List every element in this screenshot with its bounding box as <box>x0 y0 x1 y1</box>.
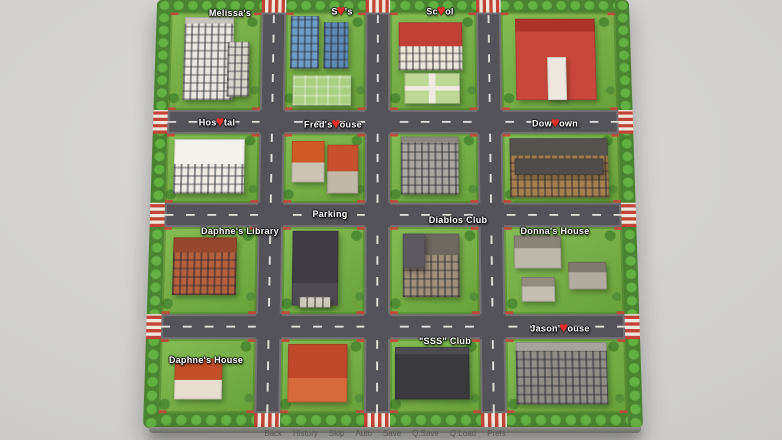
church-building <box>547 57 566 100</box>
parking-building <box>298 297 331 308</box>
sams-building <box>293 75 351 105</box>
freds-house-building <box>327 145 358 193</box>
map-label-freds-house[interactable]: Fred's ♥ouse <box>304 117 362 132</box>
crosswalk <box>481 413 507 428</box>
big-house-block[interactable] <box>280 339 364 413</box>
label-text: 's <box>345 6 353 16</box>
quickmenu-auto[interactable]: Auto <box>355 429 371 439</box>
map-label-daphnes-library[interactable]: Daphne's Library <box>201 226 279 236</box>
label-text: Daphne's Library <box>201 226 279 236</box>
parking-building <box>292 230 339 305</box>
sss-club-block[interactable] <box>390 339 481 413</box>
donnas-house-building <box>568 262 607 290</box>
map-label-melissas[interactable]: Melissa's <box>209 8 251 18</box>
school-block[interactable] <box>390 13 477 110</box>
map-label-daphnes-house[interactable]: Daphne's House <box>169 355 243 365</box>
intersection <box>258 203 284 227</box>
diablos-club-block[interactable] <box>390 227 480 314</box>
label-text: ouse <box>567 323 589 333</box>
crosswalk <box>254 413 280 428</box>
quickmenu-prefs[interactable]: Prefs <box>487 429 506 439</box>
label-text: Donna's House <box>520 226 589 236</box>
melissas-building <box>227 42 250 97</box>
road-horizontal-2 <box>164 203 622 227</box>
diablos-club-building <box>402 234 425 269</box>
hospital-building <box>173 139 245 193</box>
sams-building <box>290 16 319 68</box>
crosswalk <box>153 110 168 134</box>
crosswalk <box>146 314 162 339</box>
label-text: Hos <box>199 117 217 127</box>
quickmenu-save[interactable]: Save <box>383 429 401 439</box>
map-label-sss-club[interactable]: "SSS" Club <box>419 336 471 346</box>
sss-club-building <box>395 347 469 400</box>
sams-building <box>324 22 348 69</box>
donnas-house-building <box>514 236 562 269</box>
quickmenu-q-load[interactable]: Q.Load <box>450 429 476 439</box>
daphnes-library-building <box>172 237 237 294</box>
school-building <box>399 22 463 71</box>
downtown-building <box>515 158 604 175</box>
intersection <box>365 203 390 227</box>
label-text: tal <box>224 117 235 127</box>
intersection <box>480 314 506 339</box>
crosswalk <box>624 314 640 339</box>
map-label-sams[interactable]: S♥'s <box>331 4 352 19</box>
jasons-house-block[interactable] <box>506 339 628 413</box>
label-text: ol <box>445 6 454 16</box>
quick-menu-bar: BackHistorySkipAutoSaveQ.SaveQ.LoadPrefs <box>0 429 776 439</box>
melissas-block[interactable] <box>168 13 262 110</box>
apartment-building <box>401 136 459 194</box>
parking-block[interactable] <box>282 227 365 314</box>
intersection <box>364 314 390 339</box>
church-block[interactable] <box>501 13 618 110</box>
daphnes-house-block[interactable] <box>158 339 255 413</box>
crosswalk <box>262 0 287 13</box>
map-label-parking[interactable]: Parking <box>312 209 347 219</box>
label-text: ouse <box>340 119 362 129</box>
label-text: Jason' <box>530 323 560 333</box>
label-text: Diablos Club <box>429 215 488 225</box>
map-label-jasons-house[interactable]: Jason'♥ouse <box>530 321 589 336</box>
intersection <box>256 314 282 339</box>
label-text: Melissa's <box>209 8 251 18</box>
donnas-house-block[interactable] <box>504 227 624 314</box>
quickmenu-skip[interactable]: Skip <box>329 429 345 439</box>
intersection <box>259 110 284 134</box>
downtown-block[interactable] <box>503 134 621 203</box>
freds-house-building <box>292 141 325 182</box>
map-label-diablos-club[interactable]: Diablos Club <box>429 215 488 225</box>
donnas-house-building <box>521 277 555 302</box>
crosswalk <box>364 413 390 428</box>
apartment-block[interactable] <box>390 134 478 203</box>
quickmenu-back[interactable]: Back <box>264 429 282 439</box>
map-label-hospital[interactable]: Hos♥tal <box>199 115 236 130</box>
daphnes-library-block[interactable] <box>162 227 258 314</box>
quickmenu-q-save[interactable]: Q.Save <box>412 429 439 439</box>
label-text: Daphne's House <box>169 355 243 365</box>
map-label-downtown[interactable]: Dow♥own <box>532 116 578 131</box>
hospital-block[interactable] <box>165 134 259 203</box>
sams-block[interactable] <box>285 13 366 110</box>
jasons-house-building <box>515 342 608 404</box>
school-building <box>404 73 460 104</box>
crosswalk <box>621 203 636 227</box>
freds-house-block[interactable] <box>283 134 365 203</box>
crosswalk <box>476 0 501 13</box>
crosswalk <box>150 203 165 227</box>
label-text: Parking <box>312 209 347 219</box>
game-map-screen: Melissa'sS♥'sSc♥olHos♥talFred's ♥ouseDow… <box>0 0 782 440</box>
intersection <box>477 110 502 134</box>
tree-border-bottom <box>143 413 643 428</box>
label-text: own <box>559 118 578 128</box>
crosswalk <box>366 0 391 13</box>
quickmenu-history[interactable]: History <box>293 429 318 439</box>
big-house-building <box>287 344 348 403</box>
map-label-donnas-house[interactable]: Donna's House <box>520 226 589 236</box>
intersection <box>365 110 390 134</box>
map-label-school[interactable]: Sc♥ol <box>426 4 453 19</box>
label-text: Dow <box>532 118 552 128</box>
label-text: Fred's <box>304 119 332 129</box>
crosswalk <box>618 110 633 134</box>
label-text: "SSS" Club <box>419 336 471 346</box>
